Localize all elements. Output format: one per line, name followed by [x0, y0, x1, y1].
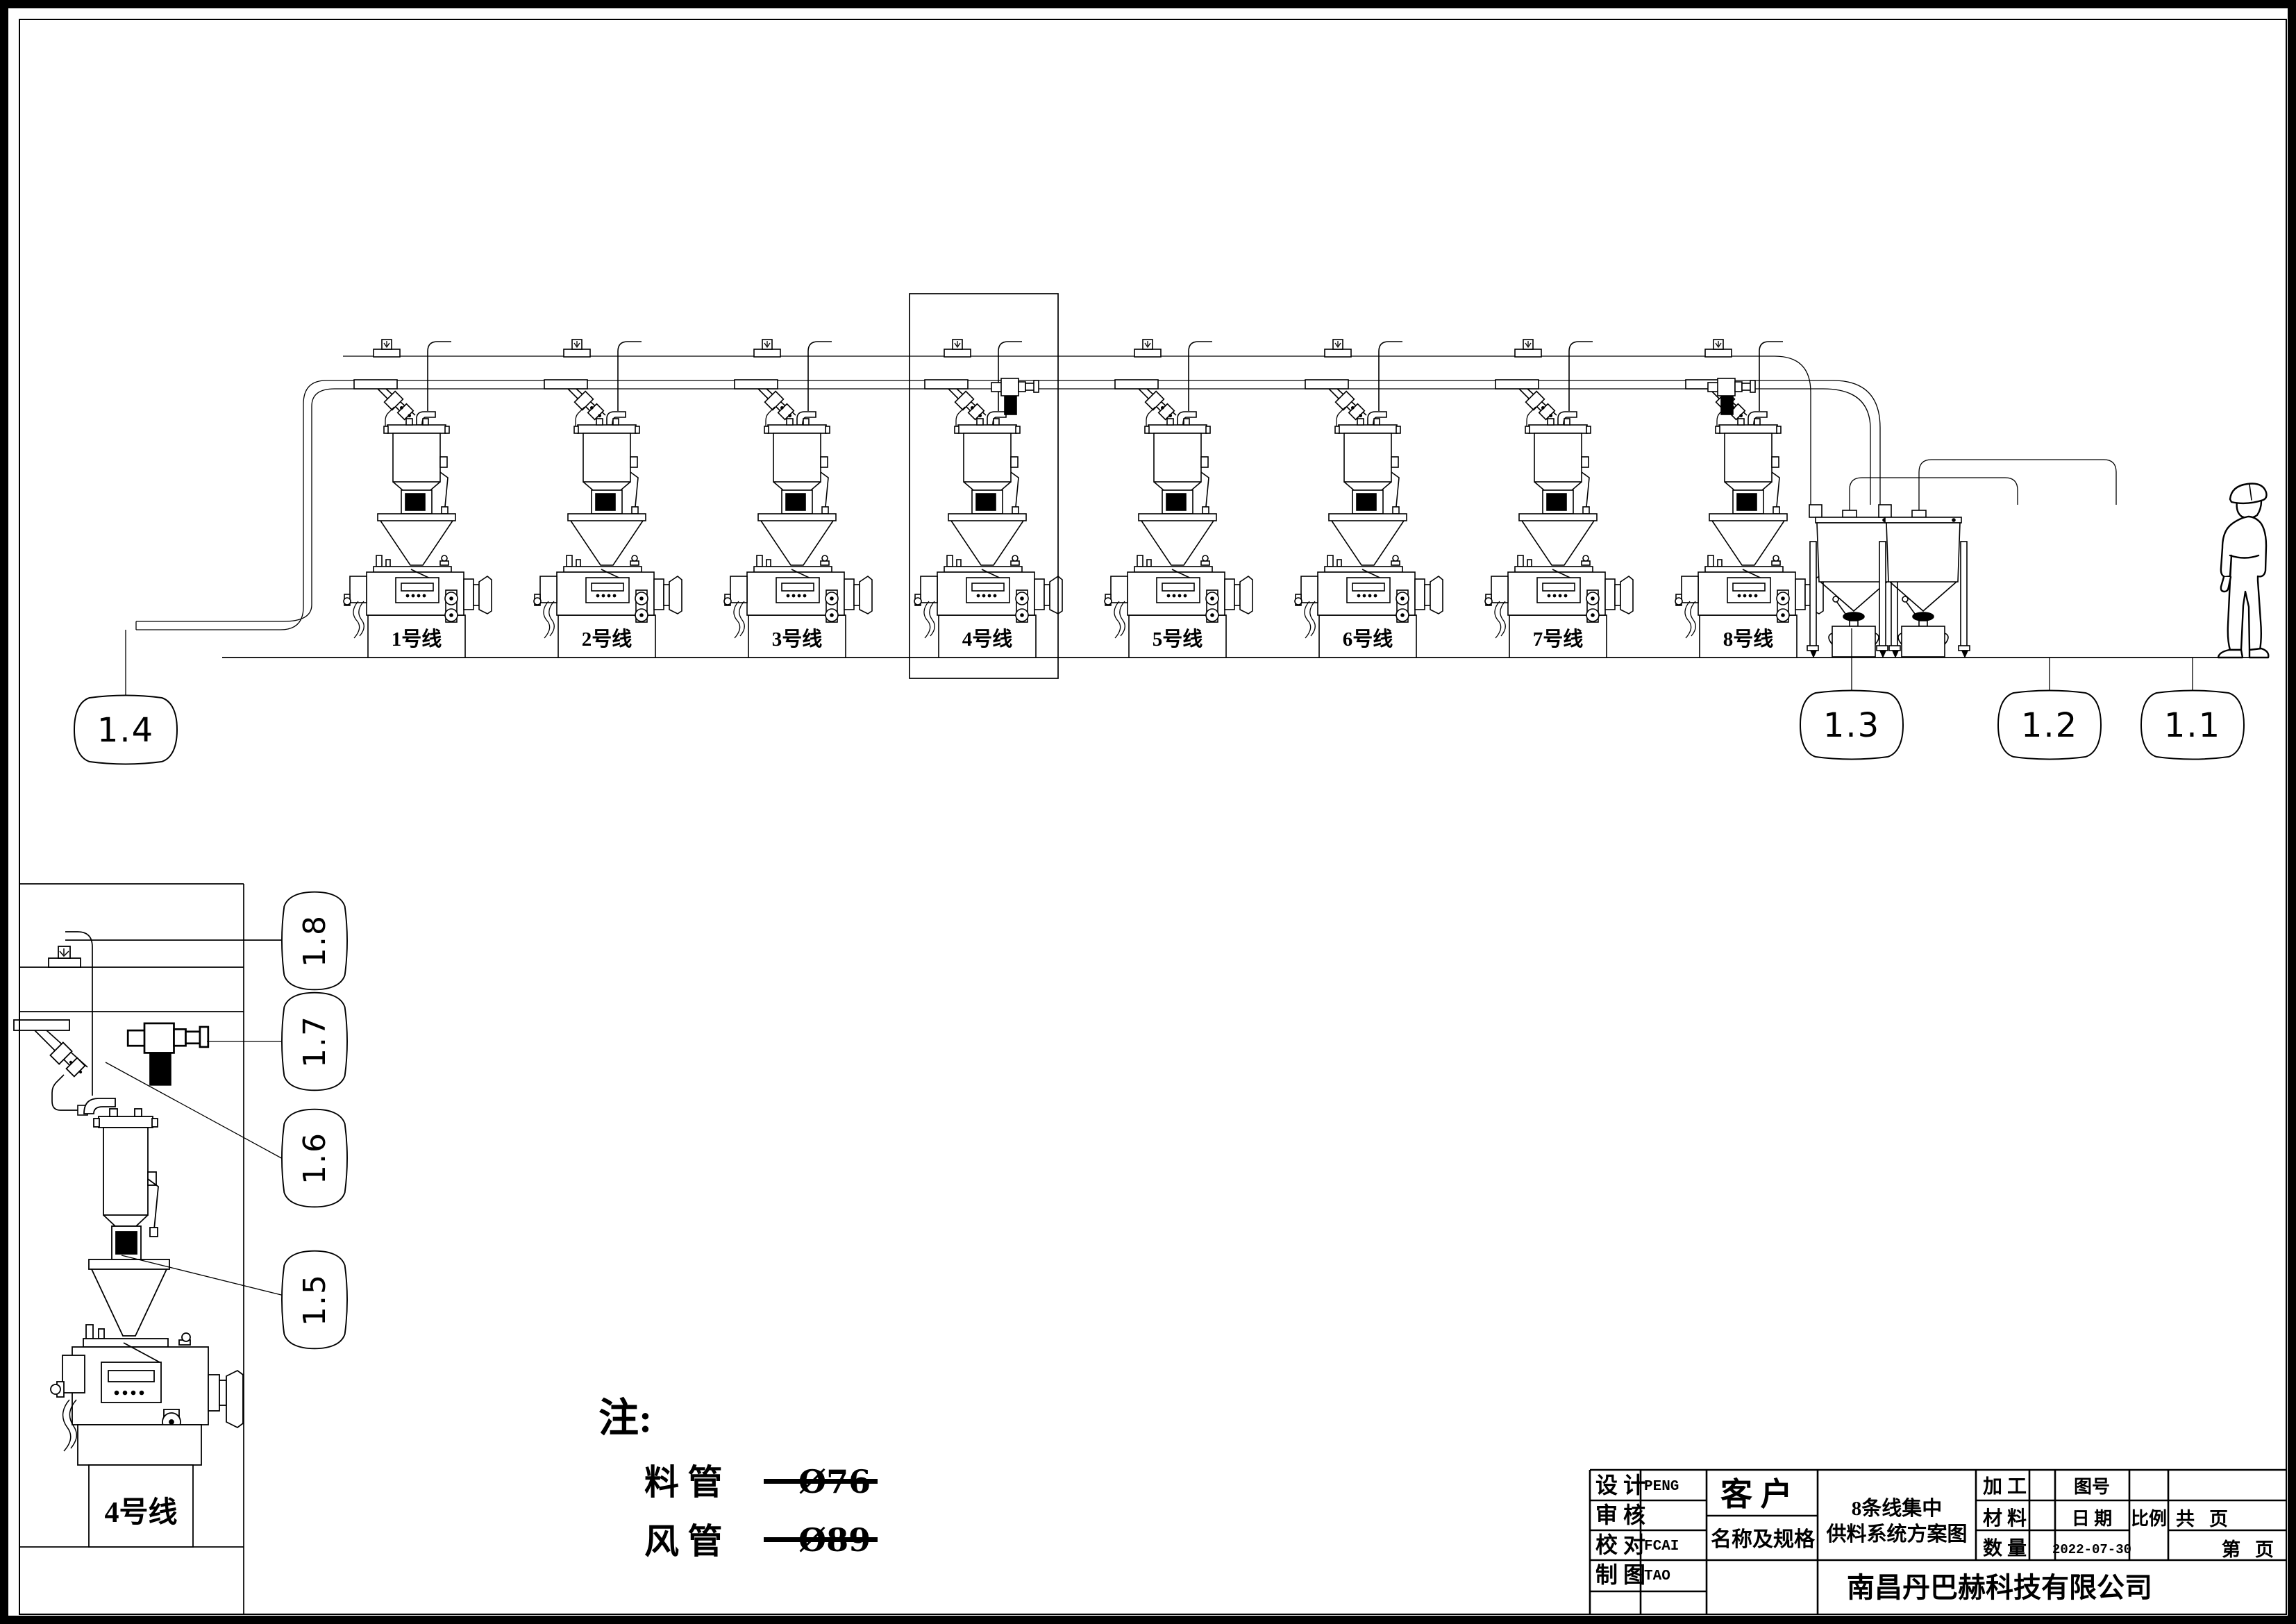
line-unit-6: 6号线 [1295, 340, 1443, 658]
callout-1-1: 1.1 [2141, 658, 2244, 760]
detail-unit-label: 4号线 [104, 1496, 177, 1529]
designer-label: 设 计 [1595, 1473, 1645, 1498]
total-pages-label: 页 [2209, 1509, 2228, 1530]
storage-tank-2 [1877, 505, 1970, 657]
callout-1-2: 1.2 [1998, 658, 2101, 760]
line-unit-label: 4号线 [962, 628, 1013, 651]
callout-1-7: 1.7 [282, 993, 347, 1091]
cad-schematic: 1号线 2号线 3号线 4号线 5号线 6号线 7号线 8号线 1. [0, 0, 2296, 1624]
callout-label: 1.6 [297, 1132, 333, 1184]
drawing-sheet: 1号线 2号线 3号线 4号线 5号线 6号线 7号线 8号线 1. [0, 0, 2296, 1624]
drafter-label: 制 图 [1595, 1562, 1645, 1587]
company-name: 南昌丹巴赫科技有限公司 [1847, 1572, 2152, 1603]
scale-label: 比例 [2131, 1509, 2167, 1529]
reviewer-label: 审 核 [1595, 1502, 1645, 1527]
quantity-label: 数 量 [1983, 1537, 2027, 1559]
note-material-pipe-label: 料 管 [644, 1463, 723, 1502]
line-unit-5: 5号线 [1105, 340, 1252, 658]
callout-1-6: 1.6 [282, 1110, 347, 1207]
page-label: 第 [2222, 1539, 2240, 1560]
page-pages-label: 页 [2255, 1539, 2274, 1560]
line-unit-label: 8号线 [1723, 628, 1774, 651]
callout-1-5: 1.5 [282, 1251, 347, 1349]
checker-value: FCAI [1644, 1539, 1679, 1555]
worker-figure [2218, 484, 2268, 658]
callout-label: 1.7 [297, 1015, 333, 1068]
line-unit-label: 1号线 [392, 628, 442, 651]
line-unit-label: 6号线 [1343, 628, 1393, 651]
notes-block: 注: 料 管 Ø76 风 管 Ø89 [598, 1396, 878, 1561]
line-unit-4: 4号线 [914, 340, 1062, 658]
callout-label: 1.1 [2164, 706, 2221, 745]
material-label: 材 料 [1983, 1507, 2027, 1530]
callout-label: 1.4 [97, 711, 154, 750]
callout-label: 1.5 [297, 1273, 333, 1326]
line-unit-label: 5号线 [1153, 628, 1203, 651]
date-value: 2022-07-30 [2052, 1542, 2131, 1557]
line-unit-label: 2号线 [582, 628, 632, 651]
line-unit-1: 1号线 [344, 340, 492, 658]
customer-label: 客 户 [1720, 1477, 1793, 1512]
detail-view: 4号线 1.8 1.7 1.6 1.5 [14, 884, 347, 1614]
outer-border [4, 4, 2292, 1620]
total-label: 共 [2176, 1509, 2195, 1530]
line-unit-2: 2号线 [534, 340, 682, 658]
drawing-no-label: 图号 [2074, 1477, 2110, 1497]
drawing-name-line2: 供料系统方案图 [1825, 1522, 1967, 1546]
callout-label: 1.3 [1823, 706, 1880, 745]
callout-label: 1.8 [297, 914, 333, 967]
drawing-name-line1: 8条线集中 [1852, 1497, 1943, 1520]
note-material-pipe-value: Ø76 [798, 1463, 871, 1500]
inner-border [19, 19, 2286, 1614]
date-label: 日 期 [2072, 1509, 2113, 1529]
drafter-value: TAO [1644, 1568, 1670, 1584]
note-air-pipe-value: Ø89 [798, 1521, 871, 1559]
callout-label: 1.2 [2021, 706, 2078, 745]
branch-valve-line8 [1708, 378, 1755, 415]
line-unit-label: 7号线 [1533, 628, 1584, 651]
designer-value: PENG [1644, 1479, 1679, 1495]
line-unit-3: 3号线 [724, 340, 872, 658]
notes-heading: 注: [598, 1396, 652, 1441]
callout-1-8: 1.8 [282, 892, 347, 990]
callout-1-4: 1.4 [74, 630, 177, 764]
name-spec-label: 名称及规格 [1711, 1528, 1816, 1551]
checker-label: 校 对 [1595, 1532, 1645, 1557]
note-air-pipe-label: 风 管 [644, 1522, 723, 1561]
line-unit-7: 7号线 [1485, 340, 1633, 658]
title-block: 设 计 PENG 审 核 校 对 FCAI 制 图 TAO 客 户 名称及规格 … [1590, 1470, 2286, 1615]
process-label: 加 工 [1983, 1475, 2027, 1498]
line-unit-label: 3号线 [772, 628, 823, 651]
